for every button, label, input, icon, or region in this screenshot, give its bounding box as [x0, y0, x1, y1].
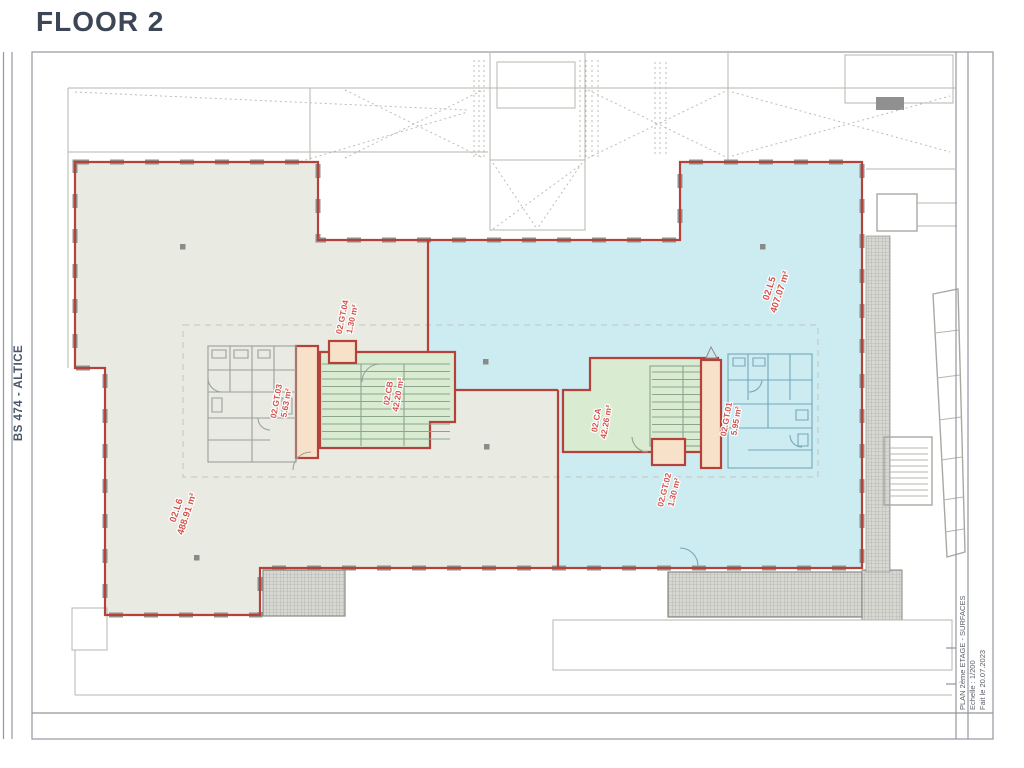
- stair-exterior-right: [884, 437, 932, 505]
- site-lines-bottom: [32, 608, 993, 713]
- corridor-gt03: [296, 346, 318, 458]
- roof-hatch-block: [876, 97, 904, 110]
- title-block: PLAN 2ème ETAGE - SURFACES Echelle : 1/2…: [958, 596, 987, 710]
- terrace-hatch-corner: [862, 570, 902, 620]
- svg-text:BS 474 - ALTICE: BS 474 - ALTICE: [13, 345, 25, 441]
- structure-top-right: [866, 169, 957, 231]
- title-block-line3: Fait le 20.07.2023: [978, 650, 987, 710]
- terrace-hatch-strip-right: [866, 236, 890, 572]
- margin-label-left: BS 474 - ALTICE: [13, 345, 25, 441]
- skylight-box: [490, 160, 585, 230]
- title-block-line2: Echelle : 1/200: [968, 660, 977, 710]
- terrace-hatch-right: [668, 572, 862, 617]
- title-block-line1: PLAN 2ème ETAGE - SURFACES: [958, 596, 967, 710]
- ramp-right: [933, 289, 965, 557]
- duct-gt02: [652, 439, 685, 465]
- duct-gt04: [329, 341, 356, 363]
- floor-plan-canvas: 02.L6 488.91 m² 02.L5 407.07 m² 02.CB 42…: [0, 0, 1024, 768]
- terrace-hatch-left: [263, 570, 345, 616]
- corridor-gt01: [701, 347, 721, 468]
